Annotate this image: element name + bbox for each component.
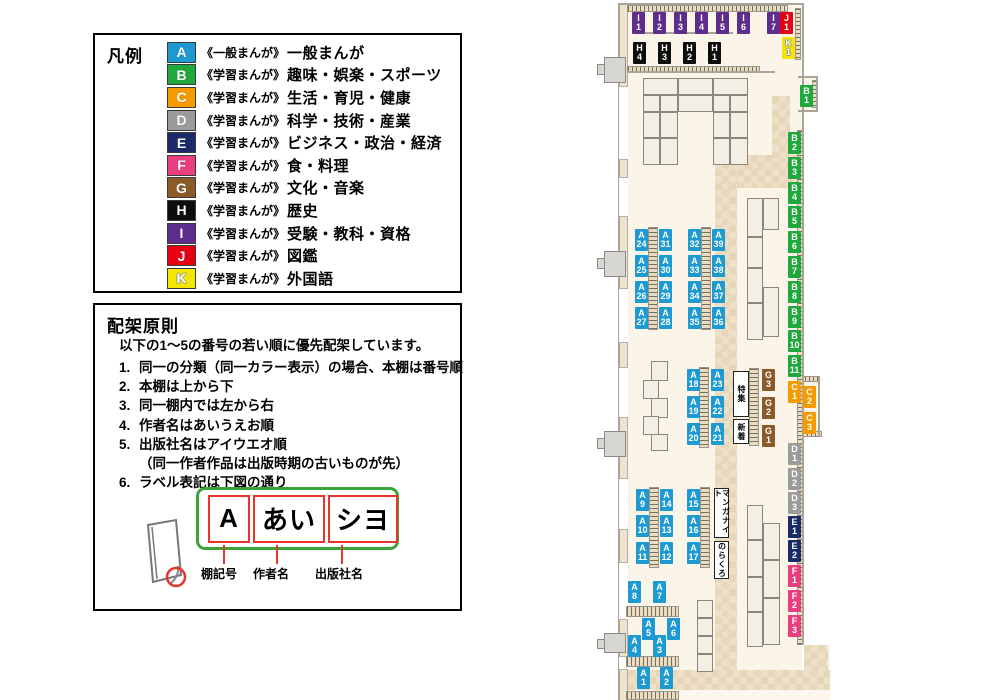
- shelf-label-C2: C2: [803, 386, 816, 408]
- shelf-label-C1: C1: [788, 381, 801, 403]
- shelf-unit: [651, 398, 668, 418]
- shelf-label-A24: A24: [635, 229, 648, 251]
- door-handle: [597, 438, 605, 449]
- book-icon: [139, 518, 191, 590]
- shelf-unit: [660, 95, 678, 112]
- shelf-label-A26: A26: [635, 281, 648, 303]
- legend-row: E《学習まんが》ビジネス・政治・経済: [167, 131, 442, 154]
- door-handle: [597, 64, 605, 75]
- diagram-connector-line: [276, 545, 278, 564]
- shelf-label-D1: D1: [788, 443, 801, 465]
- shelf-unit: [763, 523, 780, 560]
- legend-row: B《学習まんが》趣味・娯楽・スポーツ: [167, 64, 442, 87]
- shelf-label-A30: A30: [659, 255, 672, 277]
- legend-row: J《学習まんが》図鑑: [167, 244, 442, 267]
- principle-rule: 1.同一の分類（同一カラー表示）の場合、本棚は番号順: [119, 358, 463, 377]
- legend-row: D《学習まんが》科学・技術・産業: [167, 109, 442, 132]
- shelf-label-D2: D2: [788, 468, 801, 490]
- shelf-label-A39: A39: [712, 229, 725, 251]
- principles-rules: 1.同一の分類（同一カラー表示）の場合、本棚は番号順2.本棚は上から下3.同一棚…: [119, 358, 463, 492]
- diagram-connector-line: [223, 545, 225, 564]
- wall-line: [798, 76, 818, 78]
- shelf-unit: [643, 138, 660, 165]
- shelf-unit: [643, 380, 659, 399]
- rule-number: 4.: [119, 416, 139, 435]
- shelf-label-B1: B1: [800, 85, 813, 107]
- shelf-unit: [763, 598, 780, 645]
- shelf-label-A2: A2: [660, 667, 673, 689]
- legend-category: 生活・育児・健康: [287, 87, 411, 108]
- legend-row: I《学習まんが》受験・教科・資格: [167, 222, 442, 245]
- wall-window: [619, 86, 628, 160]
- legend-chip-A: A: [167, 42, 196, 63]
- shelf-label-A36: A36: [712, 307, 725, 329]
- shelf-label-A6: A6: [667, 618, 680, 640]
- rule-text: 同一棚内では左から右: [139, 396, 274, 415]
- wall-window: [619, 478, 628, 530]
- legend-chip-G: G: [167, 177, 196, 198]
- shelf-label-A14: A14: [660, 489, 673, 511]
- shelf-label-A18: A18: [687, 369, 700, 391]
- shelf-label-B2: B2: [788, 132, 801, 154]
- door: [604, 633, 626, 653]
- shelf-label-A20: A20: [687, 423, 700, 445]
- bookshelf-vertical: [648, 227, 658, 330]
- legend-category: ビジネス・政治・経済: [287, 132, 442, 153]
- shelf-label-A23: A23: [711, 369, 724, 391]
- shelf-label-I3: I3: [674, 12, 687, 34]
- principles-intro: 以下の1〜5の番号の若い順に優先配架しています。: [119, 334, 429, 354]
- legend-row: A《一般まんが》一般まんが: [167, 41, 442, 64]
- bookshelf-vertical: [795, 8, 801, 60]
- shelf-label-B9: B9: [788, 306, 801, 328]
- wall-window: [619, 177, 628, 217]
- bookshelf-vertical: [749, 368, 759, 446]
- shelf-unit: [643, 78, 678, 95]
- feature-box: のらくろ: [714, 541, 729, 579]
- bookshelf-vertical: [701, 227, 711, 330]
- shelf-unit: [763, 287, 779, 337]
- shelf-unit: [697, 618, 713, 636]
- shelf-unit: [643, 112, 660, 138]
- shelf-unit: [747, 268, 763, 303]
- shelf-label-I7: I7: [767, 12, 780, 34]
- shelf-label-A34: A34: [688, 281, 701, 303]
- shelf-unit: [747, 303, 763, 340]
- legend-row: C《学習まんが》生活・育児・健康: [167, 86, 442, 109]
- legend-row: H《学習まんが》歴史: [167, 199, 442, 222]
- shelf-label-A29: A29: [659, 281, 672, 303]
- shelf-unit: [747, 505, 763, 540]
- shelf-label-D3: D3: [788, 492, 801, 514]
- bookshelf-horizontal: [626, 691, 679, 700]
- door-handle: [597, 258, 605, 269]
- shelf-label-A35: A35: [688, 307, 701, 329]
- wall-line: [618, 3, 804, 5]
- shelf-unit: [651, 434, 668, 451]
- shelf-unit: [713, 112, 730, 138]
- shelf-label-A10: A10: [636, 515, 649, 537]
- shelf-label-I5: I5: [716, 12, 729, 34]
- shelf-unit: [730, 138, 748, 165]
- rule-text: （同一作者作品は出版時期の古いものが先）: [139, 454, 409, 473]
- shelf-unit: [660, 138, 678, 165]
- legend-type: 《一般まんが》: [201, 44, 285, 61]
- shelf-label-A15: A15: [687, 489, 700, 511]
- diagram-caption: 棚記号: [201, 565, 237, 582]
- shelf-label-A12: A12: [660, 542, 673, 564]
- bookshelf-horizontal: [627, 5, 788, 12]
- shelf-label-A28: A28: [659, 307, 672, 329]
- shelf-label-A27: A27: [635, 307, 648, 329]
- legend-chip-B: B: [167, 64, 196, 85]
- shelf-label-B8: B8: [788, 281, 801, 303]
- rule-number: 2.: [119, 377, 139, 396]
- legend-chip-J: J: [167, 245, 196, 266]
- shelf-label-B7: B7: [788, 256, 801, 278]
- diagram-connector-line: [341, 545, 343, 564]
- wall-line: [818, 377, 820, 437]
- shelf-label-B10: B10: [788, 330, 801, 352]
- shelf-unit: [747, 237, 763, 268]
- legend-type: 《学習まんが》: [201, 202, 285, 219]
- shelf-label-H4: H4: [633, 42, 646, 64]
- shelf-label-A19: A19: [687, 396, 700, 418]
- rule-text: 本棚は上から下: [139, 377, 234, 396]
- bookshelf-horizontal: [626, 606, 679, 617]
- shelf-label-A33: A33: [688, 255, 701, 277]
- legend-title: 凡例: [107, 42, 143, 67]
- shelf-unit: [747, 577, 763, 612]
- diagram-segment: あい: [253, 495, 325, 543]
- feature-box: マンガナイト: [714, 488, 729, 538]
- shelf-label-B3: B3: [788, 157, 801, 179]
- shelf-unit: [678, 95, 713, 112]
- shelf-label-A37: A37: [712, 281, 725, 303]
- principle-rule: （同一作者作品は出版時期の古いものが先）: [119, 454, 463, 473]
- legend-type: 《学習まんが》: [201, 134, 285, 151]
- shelf-label-A25: A25: [635, 255, 648, 277]
- rule-text: 同一の分類（同一カラー表示）の場合、本棚は番号順: [139, 358, 463, 377]
- shelf-unit: [660, 112, 678, 138]
- shelf-label-A11: A11: [636, 542, 649, 564]
- shelf-label-B5: B5: [788, 206, 801, 228]
- shelf-label-G1: G1: [762, 425, 775, 447]
- tiled-walkway: [804, 645, 828, 672]
- legend-type: 《学習まんが》: [201, 270, 285, 287]
- shelf-label-A9: A9: [636, 489, 649, 511]
- shelf-label-H2: H2: [683, 42, 696, 64]
- shelf-unit: [713, 78, 748, 95]
- label-diagram: Aあいシヨ: [196, 487, 399, 550]
- door: [604, 251, 626, 277]
- shelf-label-C3: C3: [803, 412, 816, 434]
- shelf-unit: [730, 95, 748, 112]
- shelf-label-H3: H3: [658, 42, 671, 64]
- door: [604, 431, 626, 457]
- legend-chip-K: K: [167, 268, 196, 289]
- legend-category: 歴史: [287, 200, 318, 221]
- legend-chip-D: D: [167, 110, 196, 131]
- bookshelf-horizontal: [626, 656, 679, 667]
- shelf-unit: [747, 612, 763, 647]
- diagram-segment: シヨ: [328, 495, 398, 543]
- legend-type: 《学習まんが》: [201, 157, 285, 174]
- shelf-label-F2: F2: [788, 590, 801, 612]
- wall-line: [627, 71, 775, 73]
- legend-type: 《学習まんが》: [201, 225, 285, 242]
- shelf-label-A16: A16: [687, 515, 700, 537]
- rule-text: 作者名はあいうえお順: [139, 416, 274, 435]
- shelf-label-B6: B6: [788, 231, 801, 253]
- legend-type: 《学習まんが》: [201, 89, 285, 106]
- shelf-unit: [747, 540, 763, 577]
- shelf-unit: [697, 636, 713, 654]
- legend-row: K《学習まんが》外国語: [167, 267, 442, 290]
- wall-window: [619, 367, 628, 418]
- legend-category: 科学・技術・産業: [287, 110, 411, 131]
- shelf-label-A13: A13: [660, 515, 673, 537]
- legend-category: 文化・音楽: [287, 177, 365, 198]
- legend-type: 《学習まんが》: [201, 179, 285, 196]
- door-handle: [597, 639, 605, 649]
- shelf-unit: [730, 112, 748, 138]
- bookshelf-vertical: [700, 487, 710, 568]
- shelf-label-A17: A17: [687, 542, 700, 564]
- legend-chip-E: E: [167, 132, 196, 153]
- shelf-label-E1: E1: [788, 516, 801, 538]
- shelf-label-A32: A32: [688, 229, 701, 251]
- shelf-label-A38: A38: [712, 255, 725, 277]
- shelf-label-A31: A31: [659, 229, 672, 251]
- legend-chip-F: F: [167, 155, 196, 176]
- shelf-label-B4: B4: [788, 182, 801, 204]
- shelf-unit: [697, 654, 713, 672]
- shelf-unit: [713, 95, 730, 112]
- legend-rows: A《一般まんが》一般まんがB《学習まんが》趣味・娯楽・スポーツC《学習まんが》生…: [167, 41, 442, 290]
- bookshelf-vertical: [699, 367, 709, 448]
- shelf-unit: [763, 198, 779, 230]
- shelf-label-I2: I2: [653, 12, 666, 34]
- shelf-label-A21: A21: [711, 423, 724, 445]
- legend-chip-I: I: [167, 223, 196, 244]
- wall-window: [619, 288, 628, 343]
- legend-category: 受験・教科・資格: [287, 223, 411, 244]
- legend-category: 一般まんが: [287, 42, 365, 63]
- shelf-unit: [763, 560, 780, 598]
- diagram-caption: 出版社名: [315, 565, 363, 582]
- shelf-label-B11: B11: [788, 355, 801, 377]
- shelf-label-A3: A3: [653, 635, 666, 657]
- rule-number: 3.: [119, 396, 139, 415]
- principle-rule: 3.同一棚内では左から右: [119, 396, 463, 415]
- principle-rule: 5.出版社名はアイウエオ順: [119, 435, 463, 454]
- shelf-label-F3: F3: [788, 615, 801, 637]
- shelf-label-A22: A22: [711, 396, 724, 418]
- bookshelf-vertical: [649, 487, 659, 568]
- wall-line: [798, 110, 818, 112]
- shelf-unit: [643, 95, 660, 112]
- shelf-label-I4: I4: [695, 12, 708, 34]
- shelf-label-E2: E2: [788, 540, 801, 562]
- legend-row: G《学習まんが》文化・音楽: [167, 177, 442, 200]
- legend-category: 外国語: [287, 268, 334, 289]
- legend-type: 《学習まんが》: [201, 112, 285, 129]
- door: [604, 57, 626, 83]
- legend-category: 食・料理: [287, 155, 349, 176]
- principle-rule: 4.作者名はあいうえお順: [119, 416, 463, 435]
- legend-row: F《学習まんが》食・料理: [167, 154, 442, 177]
- rule-text: 出版社名はアイウエオ順: [139, 435, 287, 454]
- legend-type: 《学習まんが》: [201, 247, 285, 264]
- rule-number: 1.: [119, 358, 139, 377]
- shelf-unit: [651, 361, 668, 381]
- tiled-walkway: [628, 670, 830, 690]
- shelf-label-F1: F1: [788, 565, 801, 587]
- rule-number: 5.: [119, 435, 139, 454]
- legend-type: 《学習まんが》: [201, 66, 285, 83]
- shelf-label-A4: A4: [628, 635, 641, 657]
- legend-category: 趣味・娯楽・スポーツ: [287, 64, 442, 85]
- feature-box: 新着: [733, 419, 749, 444]
- shelf-label-H1: H1: [708, 42, 721, 64]
- feature-box: 特集: [733, 371, 749, 417]
- library-floor-map-page: 凡例 A《一般まんが》一般まんがB《学習まんが》趣味・娯楽・スポーツC《学習まん…: [0, 0, 1000, 700]
- shelf-label-A1: A1: [637, 667, 650, 689]
- legend-chip-H: H: [167, 200, 196, 221]
- wall-line: [816, 78, 818, 112]
- rule-number: 6.: [119, 473, 139, 492]
- shelf-label-A7: A7: [653, 581, 666, 603]
- shelf-label-K1: K1: [782, 37, 795, 59]
- legend-chip-C: C: [167, 87, 196, 108]
- shelf-unit: [747, 198, 763, 237]
- diagram-segment: A: [208, 495, 250, 543]
- shelf-label-I6: I6: [737, 12, 750, 34]
- principles-panel: 配架原則 以下の1〜5の番号の若い順に優先配架しています。 1.同一の分類（同一…: [93, 303, 462, 611]
- diagram-caption: 作者名: [253, 565, 289, 582]
- shelf-label-A8: A8: [628, 581, 641, 603]
- principle-rule: 2.本棚は上から下: [119, 377, 463, 396]
- shelf-label-G2: G2: [762, 397, 775, 419]
- shelf-unit: [713, 138, 730, 165]
- shelf-unit: [643, 416, 659, 435]
- shelf-unit: [678, 78, 713, 95]
- shelf-label-I1: I1: [632, 12, 645, 34]
- legend-category: 図鑑: [287, 245, 318, 266]
- shelf-unit: [697, 600, 713, 618]
- legend-panel: 凡例 A《一般まんが》一般まんがB《学習まんが》趣味・娯楽・スポーツC《学習まん…: [93, 33, 462, 293]
- shelf-label-J1: J1: [780, 12, 793, 34]
- shelf-label-G3: G3: [762, 369, 775, 391]
